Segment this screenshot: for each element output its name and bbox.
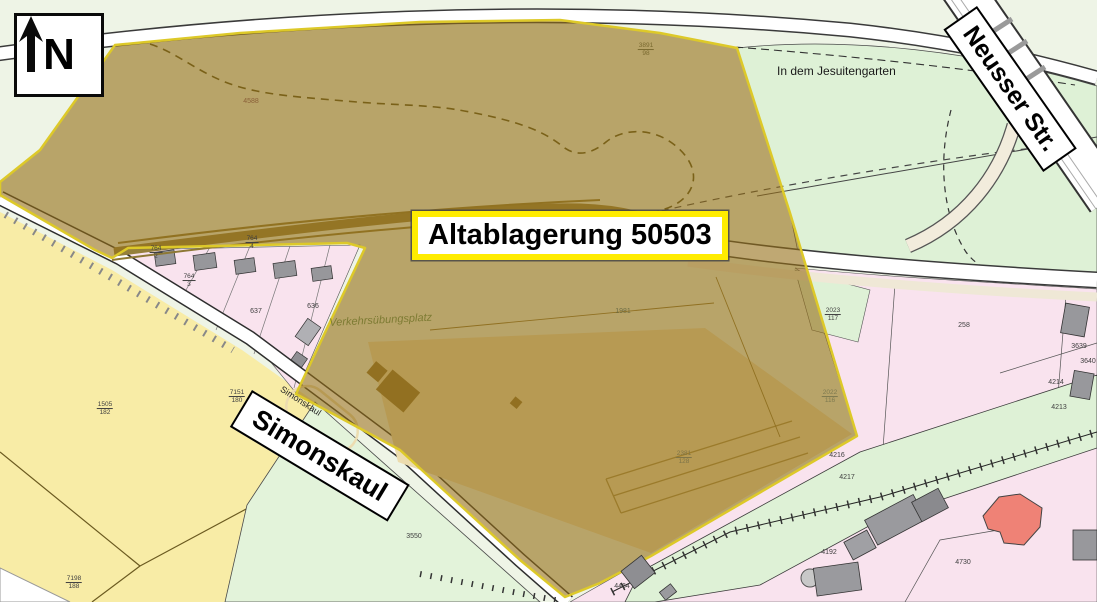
parcel-label: 4216 (829, 452, 845, 460)
map-viewport: N Altablagerung 50503 Neusser Str. Simon… (0, 0, 1097, 602)
parcel-label: 1505182 (97, 401, 113, 417)
parcel-label: 7151180 (229, 389, 245, 405)
parcel-label: 4214 (1048, 379, 1064, 387)
parcel-label: 389198 (638, 42, 654, 58)
parcel-label: 636 (307, 303, 319, 311)
north-arrow-box: N (14, 13, 104, 97)
parcel-label: 3639 (1071, 343, 1087, 351)
parcel-label: 4464 (614, 583, 630, 591)
parcel-label: 4730 (955, 559, 971, 567)
parcel-label: 3640 (1080, 358, 1096, 366)
parcel-label: 1981 (615, 308, 631, 316)
parcel-label: 637 (250, 308, 262, 316)
parcel-label: 7644 (246, 235, 259, 251)
parcel-label: 7198188 (66, 575, 82, 591)
parcel-label: 258 (958, 322, 970, 330)
parcel-label: 3550 (406, 533, 422, 541)
parcel-label: 2023117 (825, 307, 841, 323)
area-label-jesuitengarten: In dem Jesuitengarten (777, 64, 896, 78)
parcel-label: 4213 (1051, 404, 1067, 412)
parcel-label: 2022116 (822, 389, 838, 405)
parcel-label: 4588 (243, 98, 259, 106)
base-map (0, 0, 1097, 602)
site-label: Altablagerung 50503 (412, 211, 728, 260)
parcel-label: 7642 (150, 245, 163, 261)
north-label: N (43, 33, 75, 77)
parcel-label: 7643 (183, 273, 196, 289)
parcel-label: 2381128 (676, 450, 692, 466)
parcel-label: 4192 (821, 549, 837, 557)
north-arrow-icon (17, 16, 45, 72)
parcel-label: 4217 (839, 474, 855, 482)
